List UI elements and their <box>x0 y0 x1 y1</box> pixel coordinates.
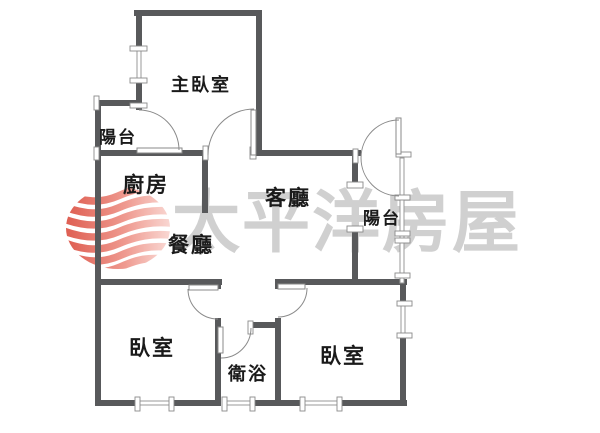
room-label-kitchen: 廚房 <box>123 173 169 197</box>
floor-plan-svg: 太平洋房屋 <box>0 0 600 433</box>
room-label-balcony-right: 陽台 <box>363 208 401 228</box>
floor-plan-image: 太平洋房屋 <box>0 0 600 433</box>
room-label-bedroom-right: 臥室 <box>320 344 366 368</box>
window-bottom-1 <box>135 401 172 405</box>
room-label-living-room: 客廳 <box>265 186 311 210</box>
room-label-bathroom: 衛浴 <box>227 363 268 384</box>
room-label-balcony-left: 陽台 <box>99 127 137 147</box>
window-bottom-3 <box>301 401 339 405</box>
watermark-brand-text: 太平洋房屋 <box>172 185 522 261</box>
room-label-dining-room: 餐廳 <box>168 233 214 257</box>
room-label-bedroom-left: 臥室 <box>129 336 175 360</box>
room-label-master-bedroom: 主臥室 <box>171 74 231 95</box>
window-master-left <box>137 50 141 82</box>
